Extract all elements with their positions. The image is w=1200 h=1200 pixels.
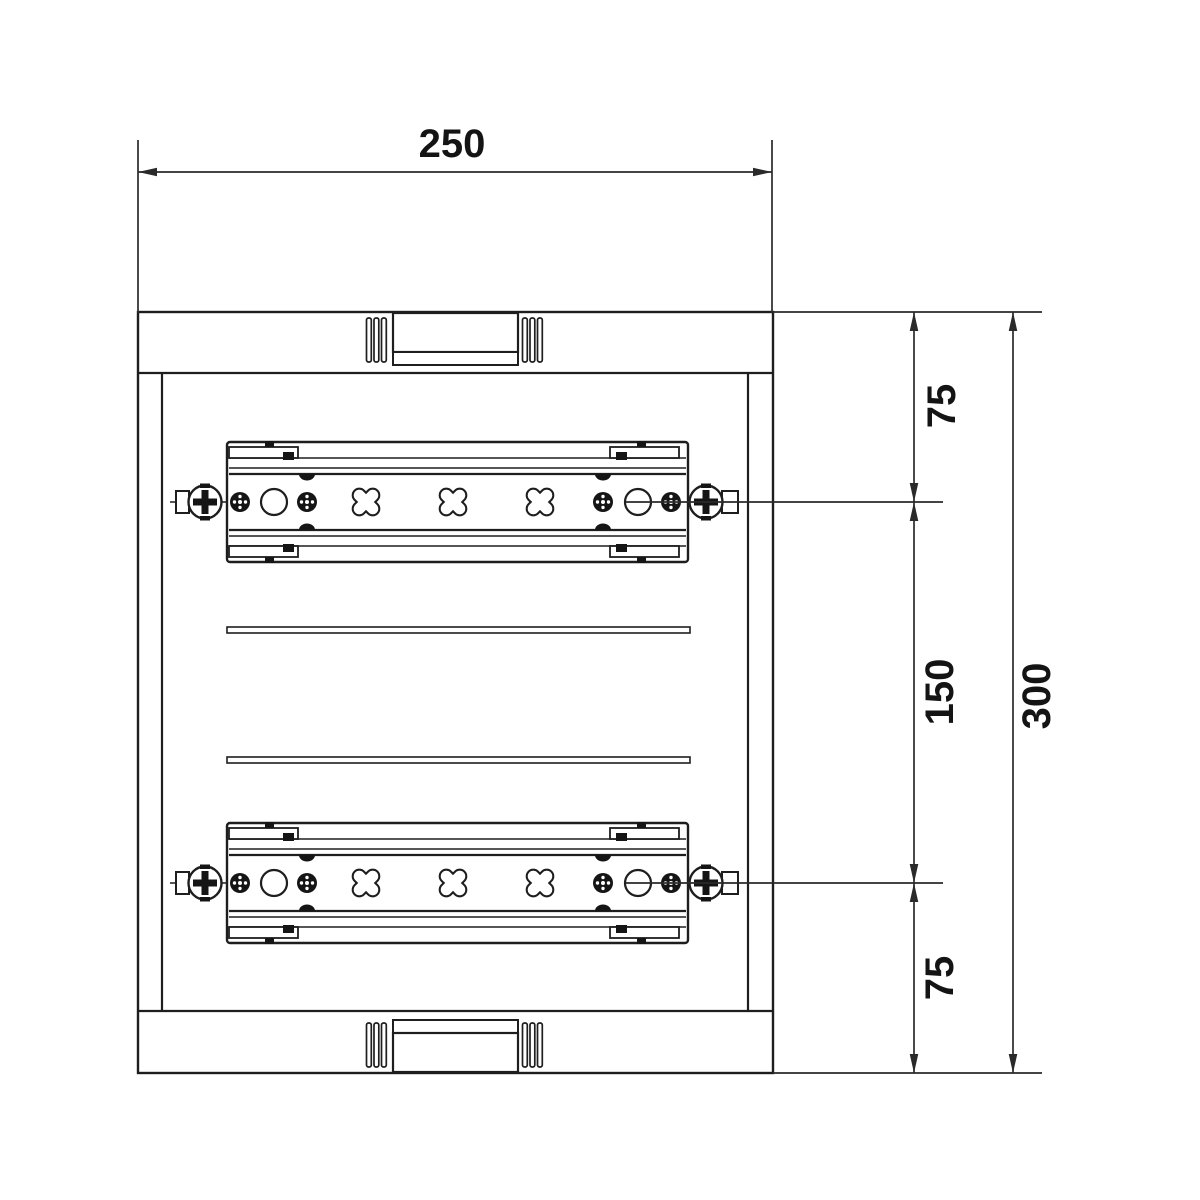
top-vent-slats-left xyxy=(367,318,387,362)
bottom-vent-handle xyxy=(367,1020,543,1072)
bottom-vent-slats-right xyxy=(523,1023,543,1067)
dimension-width: 250 xyxy=(138,122,772,313)
enclosure-outline xyxy=(138,312,773,1073)
top-vent-slats-right xyxy=(523,318,543,362)
dimension-vertical-segments: 75 150 75 xyxy=(910,312,964,1073)
dim-label-rail-spacing: 150 xyxy=(918,659,962,726)
dim-label-top-offset: 75 xyxy=(920,384,964,429)
bottom-vent-slats-left xyxy=(367,1023,387,1067)
top-vent-handle xyxy=(367,313,543,365)
dim-label-total-height: 300 xyxy=(1015,663,1059,730)
enclosure-drawing: 250 75 150 75 300 xyxy=(0,0,1200,1200)
dim-label-bottom-offset: 75 xyxy=(918,956,962,1001)
dim-label-width: 250 xyxy=(419,122,486,166)
technical-drawing-canvas: 250 75 150 75 300 xyxy=(0,0,1200,1200)
dimension-total-height: 300 xyxy=(1009,312,1059,1073)
